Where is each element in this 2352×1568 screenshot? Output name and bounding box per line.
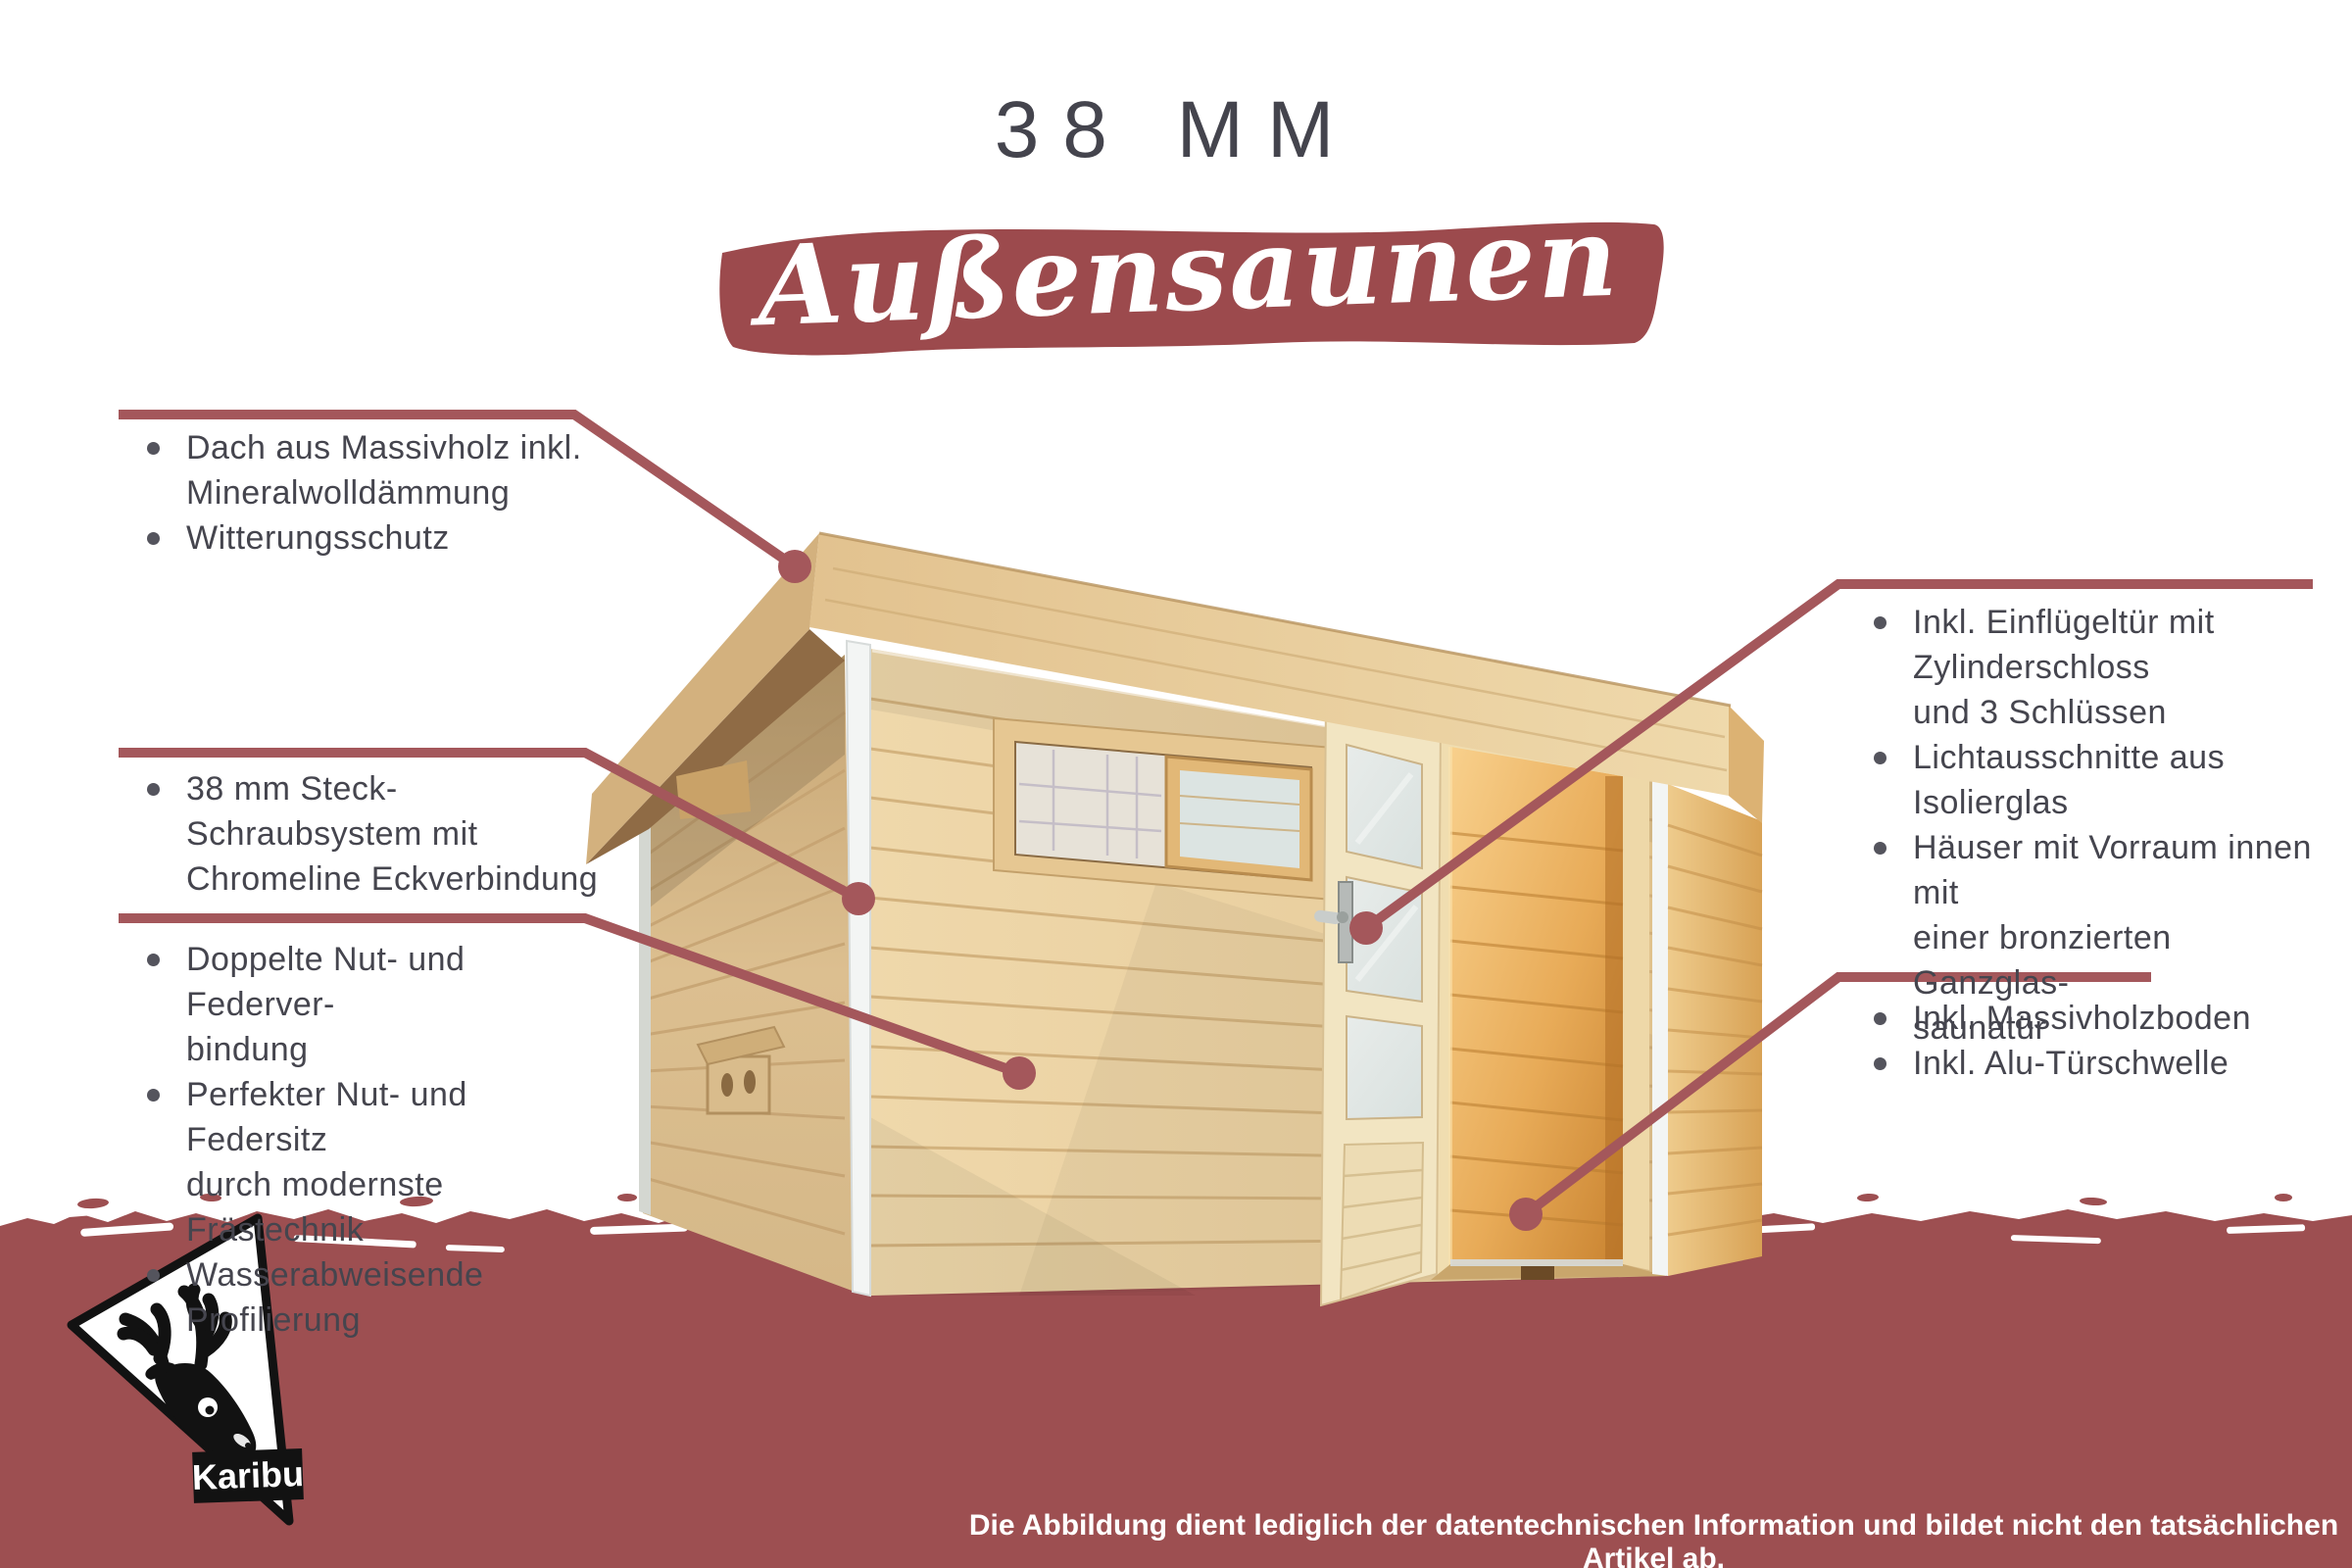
bullet-icon: [1874, 1012, 1886, 1025]
dot-planks: [1003, 1056, 1036, 1090]
callout-text: Inkl. Einflügeltür mit Zylinderschloss: [1913, 600, 2334, 690]
karibu-label: Karibu: [191, 1448, 305, 1503]
list-item: Häuser mit Vorraum innen mit: [1874, 825, 2334, 915]
infographic-page: Karibu: [0, 0, 2352, 1568]
list-item: Lichtausschnitte aus Isolierglas: [1874, 735, 2334, 825]
sauna-house: [586, 533, 1764, 1305]
list-item: Dach aus Massivholz inkl.: [147, 425, 608, 470]
bullet-icon: [147, 1089, 160, 1102]
bullet-icon: [1874, 1057, 1886, 1070]
callout-text: Inkl. Massivholzboden: [1913, 996, 2251, 1041]
door-hardware: [1521, 1266, 1554, 1280]
callout-text: 38 mm Steck-Schraubsystem mit: [186, 766, 617, 857]
list-item: 38 mm Steck-Schraubsystem mit: [147, 766, 617, 857]
bullet-icon: [147, 954, 160, 966]
dot-floor: [1509, 1198, 1543, 1231]
bullet-icon: [147, 532, 160, 545]
list-item: Inkl. Alu-Türschwelle: [1874, 1041, 2334, 1086]
callout-text: bindung: [186, 1027, 309, 1072]
callout-planks: Doppelte Nut- und Federver- bindung Perf…: [147, 937, 617, 1343]
callout-text: Mineralwolldämmung: [186, 470, 510, 515]
page-title: 38 MM: [0, 84, 2352, 176]
callout-door: Inkl. Einflügeltür mit Zylinderschloss u…: [1874, 600, 2334, 1051]
list-item: Doppelte Nut- und Federver-: [147, 937, 617, 1027]
bullet-icon: [1874, 616, 1886, 629]
disclaimer-text: Die Abbildung dient lediglich der datent…: [955, 1509, 2352, 1568]
list-item: bindung: [147, 1027, 617, 1072]
callout-text: einer bronzierten Ganzglas-: [1913, 915, 2334, 1005]
roof-right-end: [1729, 706, 1764, 823]
list-item: Inkl. Massivholzboden: [1874, 996, 2334, 1041]
dot-roof: [778, 550, 811, 583]
bullet-icon: [1874, 752, 1886, 764]
callout-text: und 3 Schlüssen: [1913, 690, 2167, 735]
list-item: Mineralwolldämmung: [147, 470, 608, 515]
list-item: Witterungsschutz: [147, 515, 608, 561]
callout-text: Dach aus Massivholz inkl.: [186, 425, 582, 470]
chromeline-strip-right: [1652, 780, 1668, 1276]
list-item: Perfekter Nut- und Federsitz: [147, 1072, 617, 1162]
bullet-icon: [1874, 842, 1886, 855]
back-corner-strip: [639, 802, 651, 1215]
callout-text: Witterungsschutz: [186, 515, 450, 561]
callout-floor: Inkl. Massivholzboden Inkl. Alu-Türschwe…: [1874, 996, 2334, 1086]
list-item: Wasserabweisende Profilierung: [147, 1252, 617, 1343]
dot-door: [1349, 911, 1383, 945]
callout-text: Wasserabweisende Profilierung: [186, 1252, 617, 1343]
alu-threshold: [1450, 1259, 1623, 1266]
window-inner-sash: [1166, 757, 1311, 880]
callout-text: Chromeline Eckverbindung: [186, 857, 598, 902]
list-item: und 3 Schlüssen: [1874, 690, 2334, 735]
callout-text: Perfekter Nut- und Federsitz: [186, 1072, 617, 1162]
bullet-icon: [147, 783, 160, 796]
bullet-icon: [147, 442, 160, 455]
callout-text: Häuser mit Vorraum innen mit: [1913, 825, 2334, 915]
karibu-brand-text: Karibu: [191, 1453, 304, 1497]
callout-system: 38 mm Steck-Schraubsystem mit Chromeline…: [147, 766, 617, 902]
callout-text: Inkl. Alu-Türschwelle: [1913, 1041, 2229, 1086]
open-door: [1313, 699, 1441, 1305]
sauna-interior: [1450, 747, 1623, 1276]
callout-text: Doppelte Nut- und Federver-: [186, 937, 617, 1027]
callout-text: durch modernste Frästechnik: [186, 1162, 617, 1252]
list-item: Chromeline Eckverbindung: [147, 857, 617, 902]
callout-text: Lichtausschnitte aus Isolierglas: [1913, 735, 2334, 825]
right-side: [1652, 780, 1762, 1276]
bullet-icon: [147, 1269, 160, 1282]
list-item: durch modernste Frästechnik: [147, 1162, 617, 1252]
dot-system: [842, 882, 875, 915]
list-item: einer bronzierten Ganzglas-: [1874, 915, 2334, 1005]
window: [994, 718, 1333, 900]
callout-roof: Dach aus Massivholz inkl. Mineralwolldäm…: [147, 425, 608, 561]
list-item: Inkl. Einflügeltür mit Zylinderschloss: [1874, 600, 2334, 690]
